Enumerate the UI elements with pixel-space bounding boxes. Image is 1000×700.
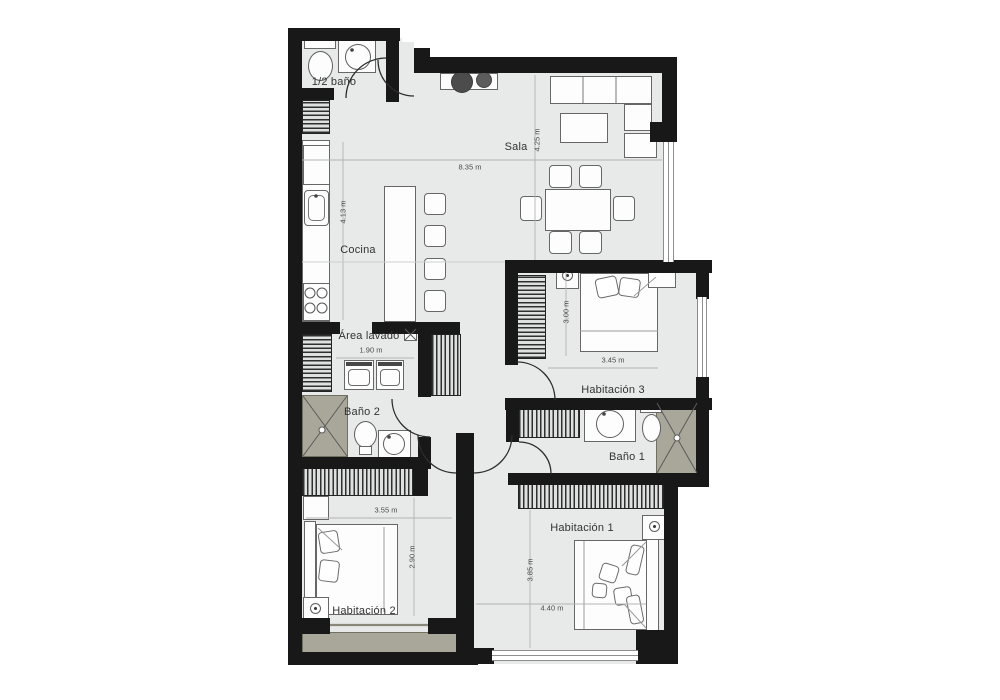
shower-bath1 [656, 402, 698, 474]
lamp-dot [653, 525, 656, 528]
dryer-lid [380, 369, 400, 386]
dryer-panel [378, 362, 402, 366]
lamp-dot [566, 274, 569, 277]
wall-bedroom3-left [505, 273, 518, 365]
pillow [618, 277, 641, 299]
duct-shaft-hatch [302, 100, 330, 134]
dim-bedroom3-width: 3.45 m [602, 356, 625, 365]
stove [303, 283, 330, 321]
shower-bath2 [302, 395, 348, 457]
wall-kitchen-bottom-left [288, 322, 340, 334]
bedroom1-closet-hatch [518, 484, 664, 509]
wall-bedroom3-top [505, 260, 712, 273]
dining-table [545, 189, 611, 231]
room-label-bedroom3: Habitación 3 [581, 384, 645, 396]
lamp-icon [649, 521, 660, 532]
room-label-bath1: Baño 1 [609, 451, 645, 463]
kitchen-sink-basin [308, 195, 325, 221]
kitchen-island [384, 186, 416, 322]
decor-bowl-small [476, 72, 492, 88]
dim-sala-height: 4.25 m [533, 129, 542, 152]
bar-stool [424, 225, 446, 247]
dim-laundry-width: 1.90 m [360, 346, 383, 355]
wall-bedroom3-right [696, 273, 709, 299]
lamp-icon [310, 603, 321, 614]
window-sala [663, 142, 674, 262]
toilet-icon [354, 421, 377, 448]
pillow [317, 530, 340, 555]
bar-stool [424, 193, 446, 215]
laundry-left-closet-hatch [302, 334, 332, 392]
washer-lid [348, 369, 370, 386]
wall-right-step [664, 473, 709, 487]
wall-bedroom2-bottom-right [428, 618, 460, 634]
wall-bath1-left [506, 410, 519, 442]
bath1-closet-hatch [518, 408, 580, 438]
toilet-tank [304, 40, 336, 49]
floor-plan: 1/2 baño Sala Cocina Área lavado Baño 2 … [0, 0, 1000, 700]
wall-halfbath-right [386, 28, 399, 102]
wall-bath1-right [696, 377, 709, 487]
dim-bedroom2-width: 3.55 m [375, 506, 398, 515]
wall-bedroom3-bath1-divider [505, 398, 712, 410]
refrigerator [303, 145, 330, 185]
washer [344, 360, 374, 390]
kitchen-sink [304, 190, 329, 226]
dining-chair [579, 165, 602, 188]
hall-closet-hatch [431, 334, 461, 396]
bar-stool [424, 258, 446, 280]
wall-left [288, 28, 302, 665]
bar-stool [424, 290, 446, 312]
toilet-base [359, 446, 372, 455]
wall-top-main [414, 57, 677, 73]
washer-panel [346, 362, 372, 366]
room-label-sala: Sala [505, 141, 528, 153]
wall-bottom [288, 652, 478, 665]
sofa-chaise [624, 104, 652, 131]
decor-bowl [451, 71, 473, 93]
dim-sala-width: 8.35 m [459, 163, 482, 172]
room-label-bedroom2: Habitación 2 [332, 605, 396, 617]
dining-chair [549, 231, 572, 254]
wall-laundry-right [418, 334, 431, 397]
room-label-half-bath: 1/2 baño [312, 76, 356, 88]
wall-bath2-right [418, 437, 431, 469]
wall-sala-right [662, 57, 677, 129]
bed-headboard [646, 534, 659, 635]
dryer [376, 360, 404, 390]
dining-chair [613, 196, 635, 221]
dim-bedroom1-height: 3.85 m [526, 559, 535, 582]
coffee-table [560, 113, 608, 143]
room-label-laundry: Área lavado [339, 330, 400, 342]
dim-bedroom1-width: 4.40 m [541, 604, 564, 613]
nightstand [303, 496, 329, 520]
wall-bedroom1-corner [636, 630, 678, 664]
wall-halfbath-bottom [288, 88, 334, 100]
room-label-cocina: Cocina [340, 244, 375, 256]
wall-bath2-bottom [288, 457, 430, 469]
wall-bedroom2-closet-end [413, 468, 428, 496]
wall-bedroom1-right [664, 487, 678, 652]
wall-halfbath-top [288, 28, 400, 41]
wall-bedroom2-bottom-left [288, 618, 330, 634]
dining-chair [579, 231, 602, 254]
dim-bedroom3-height: 3.00 m [562, 301, 571, 324]
toilet-icon [642, 414, 661, 442]
window-bedroom1 [492, 650, 638, 661]
wall-sala-right-block [650, 122, 677, 142]
pillow [318, 559, 341, 583]
dining-chair [549, 165, 572, 188]
pillow [591, 582, 607, 598]
dim-bedroom2-height: 2.90 m [408, 546, 417, 569]
dining-chair [520, 196, 542, 221]
window-bedroom3 [697, 297, 707, 377]
bathroom-sink-icon [596, 410, 624, 438]
dim-cocina-height: 4.13 m [339, 201, 348, 224]
lamp-dot [314, 607, 317, 610]
balcony [302, 632, 462, 653]
bedroom2-closet-hatch [302, 468, 414, 496]
room-label-bath2: Baño 2 [344, 406, 380, 418]
wall-bath1-bedroom1-divider [508, 473, 670, 485]
bathroom-sink-icon [345, 44, 371, 70]
sofa-back [550, 76, 652, 104]
bathroom-sink-icon [383, 433, 405, 455]
room-label-bedroom1: Habitación 1 [550, 522, 614, 534]
